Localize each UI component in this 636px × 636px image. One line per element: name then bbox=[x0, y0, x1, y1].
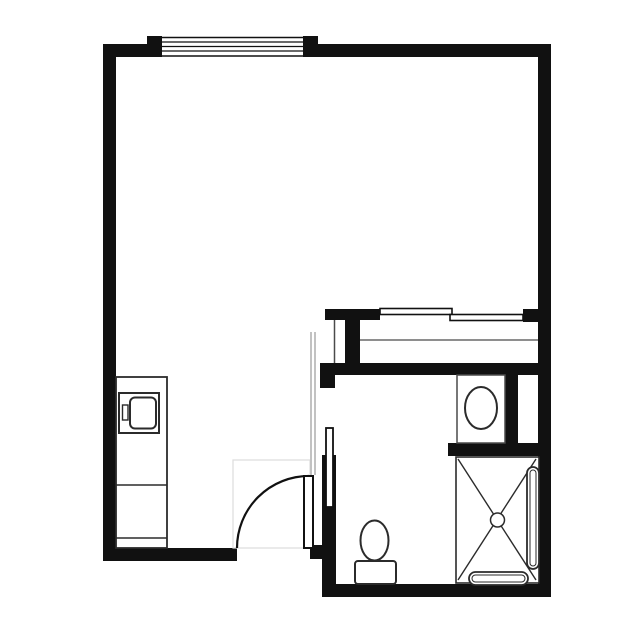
right-wall bbox=[538, 44, 551, 597]
shower-drain bbox=[491, 513, 505, 527]
vanity-sink bbox=[465, 387, 497, 429]
kitchenette bbox=[116, 377, 167, 548]
left-wall bbox=[103, 44, 116, 561]
closet-sliding-door-rear bbox=[380, 309, 452, 315]
toilet-bowl bbox=[361, 521, 389, 561]
window-jamb-right bbox=[303, 36, 318, 57]
toilet-tank bbox=[355, 561, 396, 584]
bathroom-door-leaf bbox=[326, 428, 333, 507]
window-jamb-left bbox=[147, 36, 162, 57]
grab-bar-right-outer bbox=[527, 467, 539, 569]
appliance-handle bbox=[123, 405, 129, 420]
shower-divider-wall bbox=[448, 443, 540, 456]
door-swing-zone bbox=[233, 460, 310, 548]
closet-pillar bbox=[345, 309, 360, 363]
vanity-side-wall bbox=[505, 375, 518, 443]
bathroom-bottom-wall bbox=[322, 584, 551, 597]
closet-right-wall-block bbox=[523, 309, 538, 322]
door-leaf bbox=[304, 476, 313, 548]
window bbox=[147, 36, 318, 57]
floor-plan bbox=[0, 0, 636, 636]
grab-bar-bottom-outer bbox=[469, 572, 528, 585]
floor-plan-page bbox=[0, 0, 636, 636]
vestibule bbox=[311, 332, 315, 475]
door-swing-arc bbox=[237, 476, 309, 548]
appliance-door bbox=[130, 398, 156, 429]
closet-sliding-door-front bbox=[450, 315, 523, 321]
bathroom-top-wall bbox=[320, 363, 551, 375]
bottom-wall-left bbox=[103, 548, 237, 561]
top-wall-right bbox=[318, 44, 551, 57]
entry-door bbox=[233, 460, 313, 548]
